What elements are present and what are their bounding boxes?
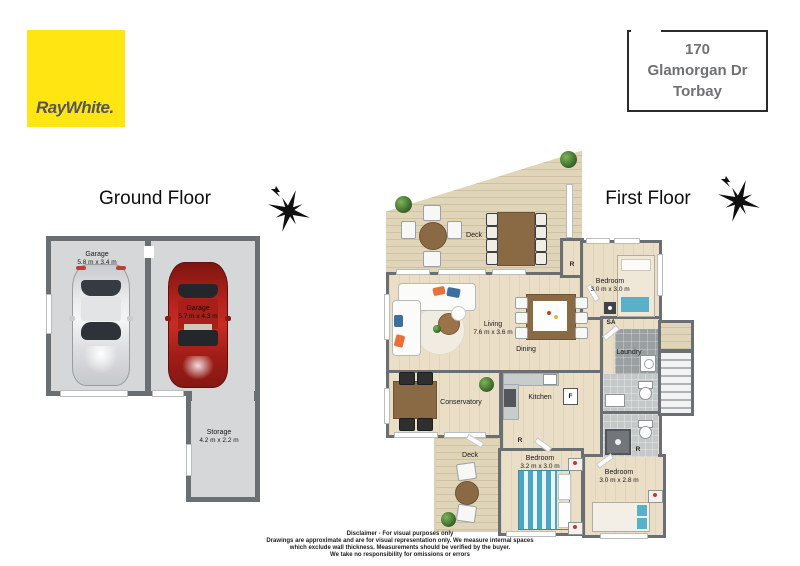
- storage-door: [186, 444, 192, 476]
- address-street: Glamorgan Dr: [629, 60, 766, 81]
- disclaimer-line: Drawings are approximate and are for vis…: [0, 538, 800, 545]
- chair: [423, 205, 441, 221]
- chair: [423, 251, 441, 267]
- garage-door-left: [60, 390, 128, 397]
- room-label-laundry: Laundry: [606, 349, 652, 357]
- car-windshield: [178, 330, 218, 346]
- address-box-border-gap: [631, 30, 661, 32]
- garage-door-right: [152, 390, 184, 397]
- window: [657, 254, 663, 296]
- car-hood-shine: [84, 346, 118, 374]
- bed-double: [518, 470, 570, 530]
- address-box: 170 Glamorgan Dr Torbay: [627, 30, 768, 112]
- stair-landing: [658, 320, 694, 352]
- first-floor-title: First Floor: [583, 188, 713, 210]
- shower-drain: [615, 439, 621, 445]
- disclaimer-line: which exclude wall thickness. Measuremen…: [0, 545, 800, 552]
- room-label-deck-top: Deck: [452, 232, 496, 240]
- chair: [486, 213, 498, 226]
- pillow: [558, 474, 571, 500]
- side-table: [451, 306, 466, 321]
- pillow: [637, 518, 647, 529]
- kitchen-sink: [543, 374, 557, 385]
- bathroom-vanity: [605, 394, 625, 407]
- storage-room: [186, 396, 260, 502]
- room-label-dining: Dining: [504, 346, 548, 354]
- disclaimer-line: Disclaimer - For visual purposes only: [0, 531, 800, 538]
- window: [396, 269, 430, 275]
- room-label-garage-right: Garage 5.7 m x 4.3 m: [166, 305, 230, 321]
- window: [438, 269, 486, 275]
- window: [586, 238, 610, 244]
- lamp: [573, 461, 577, 465]
- robe-marker: R: [566, 261, 578, 268]
- cushion: [394, 315, 403, 327]
- nightstand: [604, 302, 616, 314]
- chair: [456, 504, 477, 523]
- sa-marker: SA: [602, 319, 620, 326]
- room-label-deck-bottom: Deck: [448, 452, 492, 460]
- stove: [504, 389, 516, 407]
- pillow: [637, 505, 647, 516]
- address-suburb: Torbay: [629, 81, 766, 102]
- fridge-marker: F: [563, 388, 578, 405]
- toilet: [639, 387, 652, 400]
- plant: [560, 151, 577, 168]
- plant: [433, 325, 441, 333]
- window: [492, 269, 526, 275]
- deck-window-wall: [566, 184, 573, 238]
- car-red: [168, 262, 228, 388]
- car-roof: [81, 297, 121, 321]
- floorplan-page: RayWhite. 170 Glamorgan Dr Torbay Ground…: [0, 0, 800, 566]
- duvet: [519, 471, 557, 529]
- room-label-conservatory: Conservatory: [428, 399, 494, 407]
- room-label-kitchen: Kitchen: [516, 394, 564, 402]
- robe-marker: R: [514, 437, 526, 444]
- chair: [486, 252, 498, 265]
- room-label-garage-left: Garage 5.8 m x 3.4 m: [67, 251, 127, 267]
- chair: [417, 418, 433, 431]
- window: [384, 294, 390, 340]
- chair: [575, 297, 588, 309]
- chair: [401, 221, 416, 239]
- pillow: [621, 259, 651, 271]
- garage-side-door: [46, 294, 52, 334]
- disclaimer-line: We take no responsibility for omissions …: [0, 552, 800, 559]
- chair: [535, 226, 547, 239]
- bathroom-divider-wall: [603, 411, 658, 414]
- room-label-bedroom-mid: Bedroom 3.2 m x 3.0 m: [508, 455, 572, 471]
- car-windshield: [81, 322, 121, 340]
- raywhite-logo-text: RayWhite.: [36, 98, 114, 118]
- car-rear-window: [178, 284, 218, 298]
- chair: [535, 213, 547, 226]
- chair: [575, 327, 588, 339]
- car-mirror: [69, 316, 75, 321]
- dining-table: [526, 294, 576, 340]
- sofa: [392, 300, 421, 356]
- chair: [417, 372, 433, 385]
- window: [614, 238, 640, 244]
- plant: [479, 377, 494, 392]
- chair: [486, 239, 498, 252]
- bed-single: [592, 502, 650, 532]
- table-decor: [547, 311, 551, 315]
- ground-floor-title: Ground Floor: [75, 188, 235, 210]
- outdoor-round-table: [455, 481, 479, 505]
- lamp: [653, 493, 657, 497]
- lamp: [573, 525, 577, 529]
- chair: [456, 462, 477, 481]
- car-white: [72, 264, 130, 386]
- chair: [399, 372, 415, 385]
- dining-table-top: [533, 301, 567, 331]
- car-hood-shine: [182, 356, 214, 380]
- room-label-storage: Storage 4.2 m x 2.2 m: [187, 429, 251, 445]
- raywhite-logo: RayWhite.: [27, 30, 125, 127]
- car-mirror: [127, 316, 133, 321]
- window: [444, 432, 486, 438]
- room-label-bedroom-top: Bedroom 3.0 m x 3.0 m: [578, 278, 642, 294]
- car-rear-window: [81, 280, 121, 296]
- window: [394, 432, 438, 438]
- outdoor-round-table: [419, 222, 447, 250]
- plant: [441, 512, 456, 527]
- shower: [605, 429, 631, 455]
- lamp: [608, 306, 612, 310]
- chair: [399, 418, 415, 431]
- compass-icon: [264, 186, 314, 236]
- chair: [535, 239, 547, 252]
- table-decor: [554, 315, 558, 319]
- deck-top: [386, 148, 582, 275]
- toilet: [639, 426, 652, 439]
- outdoor-dining-table: [497, 212, 535, 266]
- blanket: [621, 297, 649, 312]
- garage-bay-opening: [144, 246, 154, 258]
- plant: [395, 196, 412, 213]
- address-number: 170: [629, 39, 766, 60]
- garage-storage-opening: [192, 391, 254, 402]
- staircase: [658, 350, 694, 416]
- chair: [575, 312, 588, 324]
- washing-machine: [640, 355, 656, 372]
- chair: [515, 297, 528, 309]
- robe-marker: R: [632, 446, 644, 453]
- washer-door: [644, 359, 654, 369]
- chair: [535, 252, 547, 265]
- compass-icon: [714, 176, 764, 226]
- room-label-living: Living 7.6 m x 3.6 m: [463, 321, 523, 337]
- disclaimer: Disclaimer - For visual purposes only Dr…: [0, 531, 800, 559]
- window: [384, 388, 390, 424]
- room-label-bedroom-right: Bedroom 3.0 m x 2.8 m: [586, 469, 652, 485]
